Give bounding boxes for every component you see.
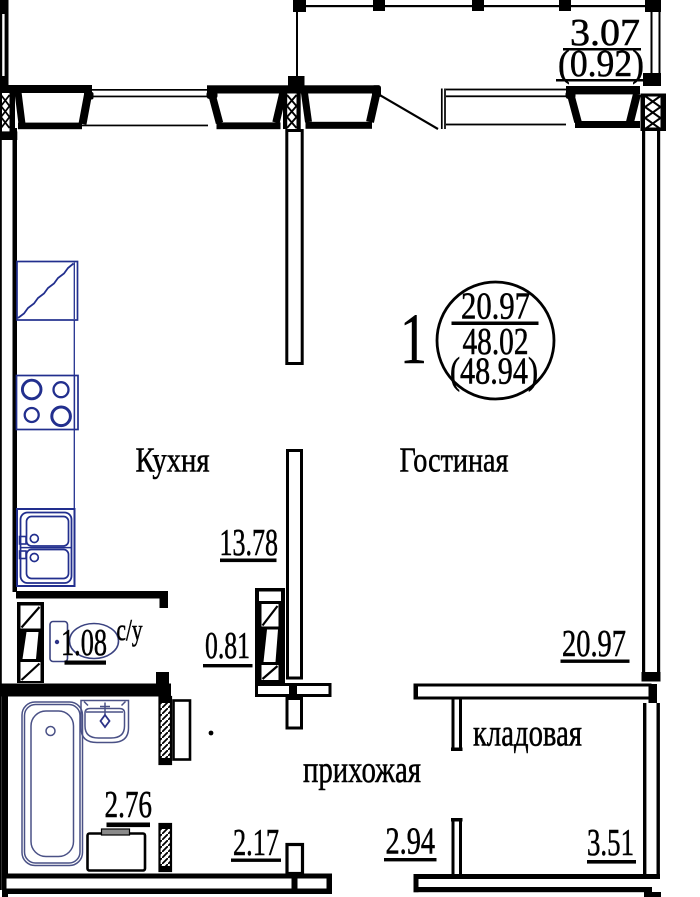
svg-text:1.08: 1.08 [61,622,107,664]
svg-text:2.17: 2.17 [233,822,279,864]
svg-text:прихожая: прихожая [303,749,421,791]
svg-text:0.81: 0.81 [205,625,250,667]
svg-text:13.78: 13.78 [220,522,279,564]
svg-text:2.76: 2.76 [105,784,153,826]
svg-text:20.97: 20.97 [562,623,626,665]
svg-text:кладовая: кладовая [473,713,582,755]
svg-text:(0.92): (0.92) [558,43,644,85]
svg-text:Гостиная: Гостиная [400,441,509,480]
svg-text:1: 1 [400,299,427,379]
svg-text:(48.94): (48.94) [450,351,538,393]
svg-text:2.94: 2.94 [386,821,436,863]
svg-text:3.51: 3.51 [587,822,634,864]
svg-text:с/у: с/у [117,612,143,647]
svg-text:Кухня: Кухня [136,441,210,480]
